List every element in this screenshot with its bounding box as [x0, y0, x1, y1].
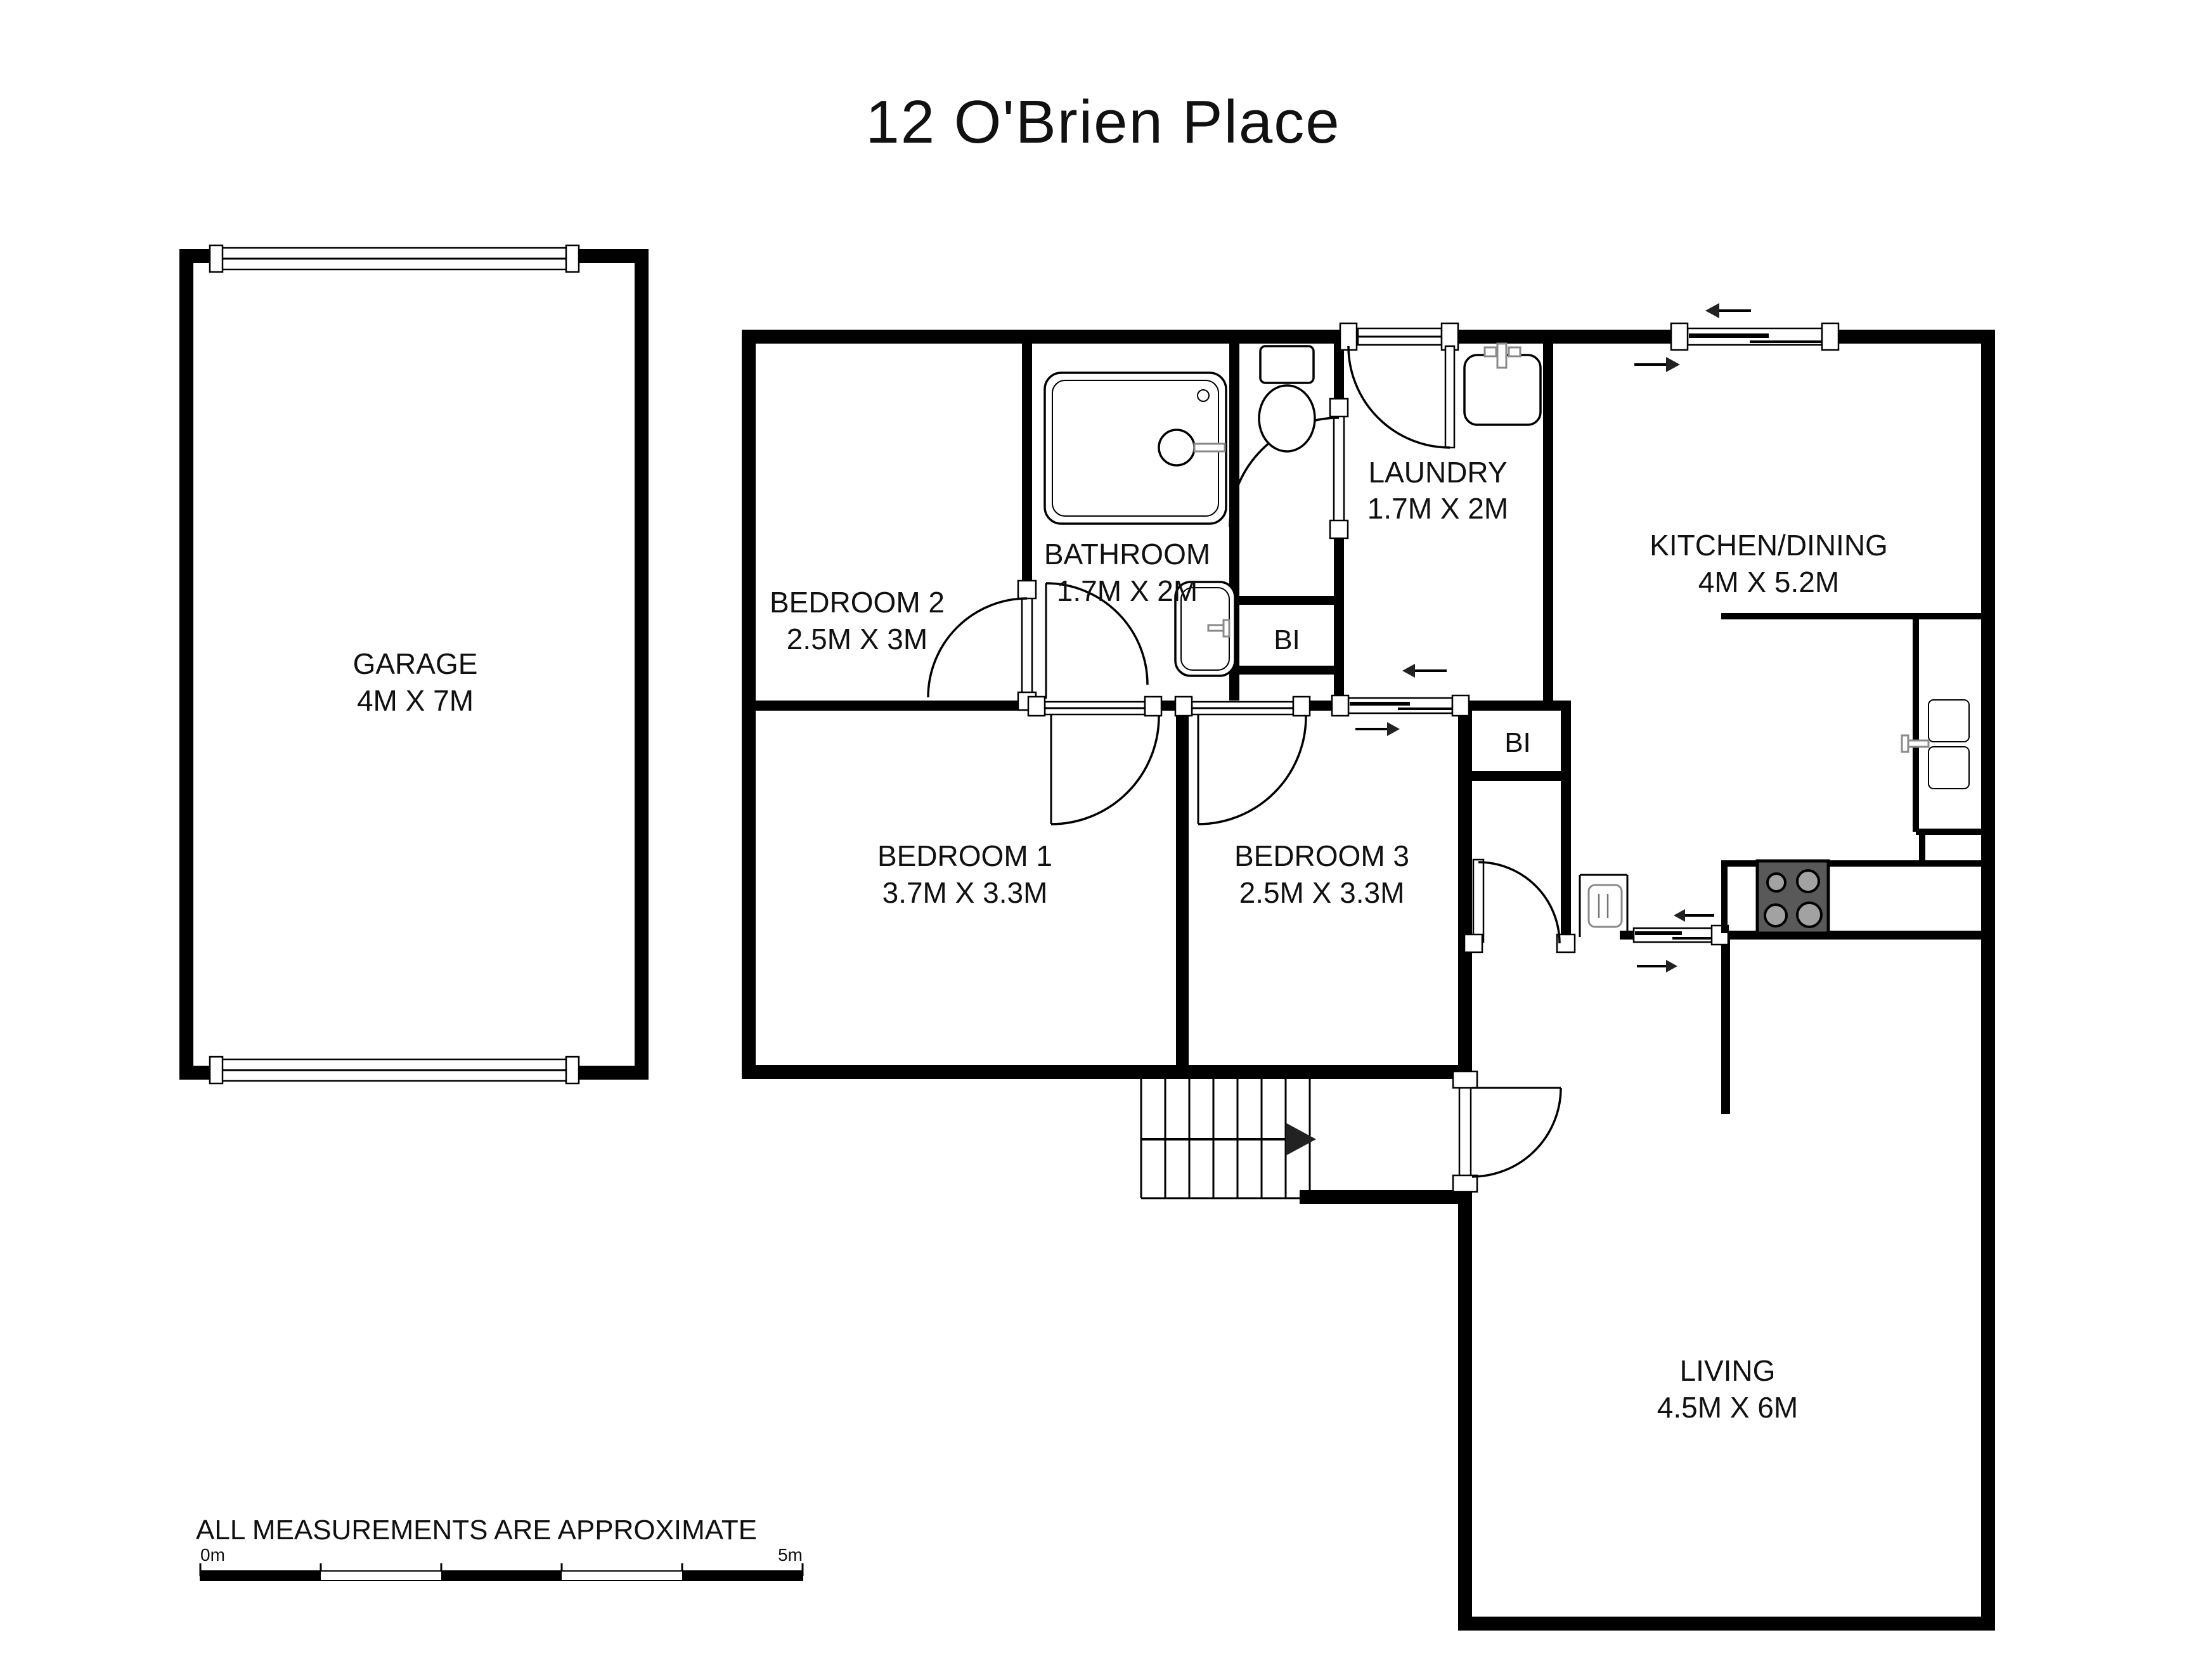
bedroom3-label: BEDROOM 3	[1234, 839, 1409, 872]
garage-dims: 4M X 7M	[357, 684, 474, 717]
laundry-dims: 1.7M X 2M	[1367, 492, 1508, 525]
stairs-up-arrow-icon	[1141, 1123, 1316, 1156]
door-bedroom-1	[1028, 697, 1161, 824]
page-title: 12 O'Brien Place	[865, 88, 1340, 156]
garage-label: GARAGE	[353, 647, 478, 680]
floor-plan-page: 12 O'Brien Place GARAGE 4M X 7M	[0, 0, 2203, 1680]
bathroom-dims: 1.7M X 2M	[1057, 574, 1198, 607]
garage-door-bottom-icon	[210, 1057, 579, 1083]
bedroom2-label: BEDROOM 2	[770, 586, 945, 619]
scale-start-label: 0m	[200, 1545, 225, 1565]
stove-icon	[1757, 861, 1828, 933]
scale-end-label: 5m	[778, 1545, 803, 1565]
bedroom1-dims: 3.7M X 3.3M	[882, 876, 1048, 909]
slide-arrow-right-icon	[1634, 357, 1680, 372]
door-bedroom-3	[1175, 697, 1310, 824]
water-heater-icon	[1580, 875, 1627, 937]
bedroom3-dims: 2.5M X 3.3M	[1239, 876, 1405, 909]
laundry-label: LAUNDRY	[1369, 456, 1508, 489]
sliding-door-laundry	[1332, 664, 1469, 736]
kitchen-label: KITCHEN/DINING	[1650, 529, 1888, 562]
slide-arrow-right-icon	[1355, 722, 1400, 736]
slide-arrow-left-icon	[1402, 664, 1447, 678]
door-hall-living	[1464, 860, 1575, 952]
door-laundry-exterior	[1340, 323, 1458, 448]
laundry-tub-icon	[1464, 344, 1541, 425]
bedroom2-dims: 2.5M X 3M	[787, 623, 927, 656]
room-garage: GARAGE 4M X 7M	[179, 245, 649, 1083]
disclaimer-text: ALL MEASUREMENTS ARE APPROXIMATE	[196, 1515, 757, 1546]
bathtub-icon	[1045, 373, 1226, 524]
living-dims: 4.5M X 6M	[1657, 1391, 1798, 1424]
slide-arrow-left-icon	[1674, 909, 1714, 922]
scale-bar: 0m 5m	[200, 1545, 803, 1580]
bi1-label: BI	[1274, 624, 1300, 656]
slide-arrow-left-icon	[1705, 303, 1751, 318]
stairs	[1141, 1079, 1316, 1198]
door-entry-living	[1453, 1071, 1561, 1192]
garage-door-top-icon	[210, 245, 579, 272]
slide-arrow-right-icon	[1637, 960, 1677, 972]
living-label: LIVING	[1680, 1354, 1776, 1387]
bathroom-label: BATHROOM	[1044, 538, 1210, 571]
sliding-door-hall-living	[1634, 909, 1728, 972]
toilet-icon	[1259, 346, 1315, 451]
kitchen-sink-icon	[1902, 700, 1969, 789]
kitchen-dims: 4M X 5.2M	[1698, 565, 1839, 598]
bi2-label: BI	[1504, 727, 1531, 758]
bedroom1-label: BEDROOM 1	[877, 839, 1052, 872]
